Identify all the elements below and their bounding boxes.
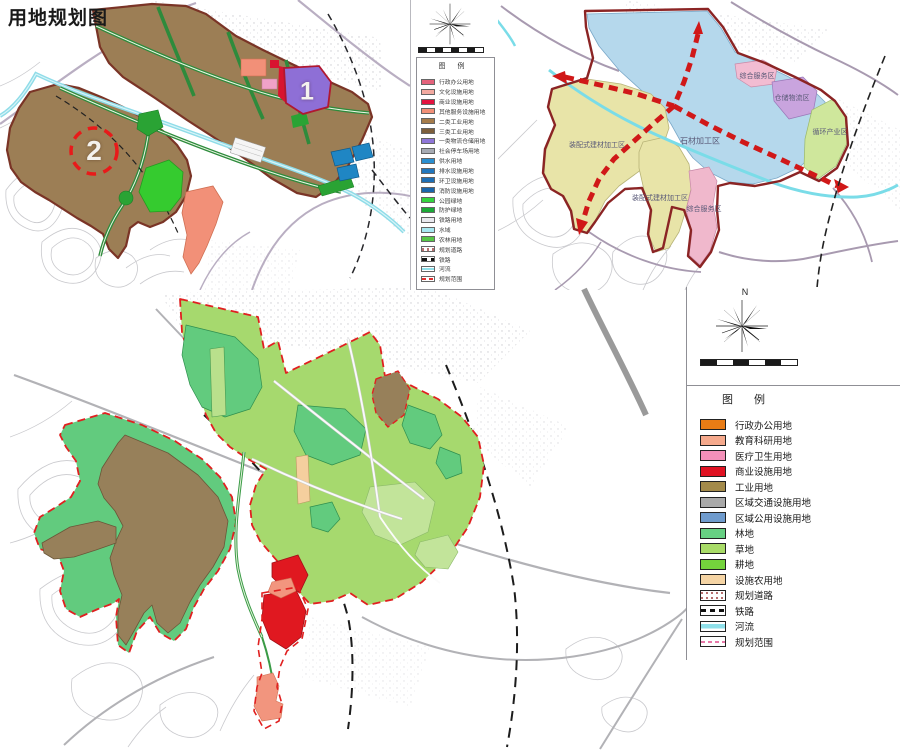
area-marker-1: 1 [300,78,314,107]
legend-label: 文化设施用地 [439,87,474,96]
legend-label: 商业设施用地 [735,464,792,478]
legend-header: 图 例 [410,61,498,71]
legend-label: 耕地 [735,557,754,571]
legend-item: 消防设施用地 [421,185,485,195]
pale-green-strip [210,347,226,417]
region-label-service-north: 综合服务区 [740,71,775,81]
legend-label: 规划道路 [735,588,773,602]
legend-swatch-fill [421,89,435,95]
legend-item: 水域 [421,225,485,235]
legend-label: 草地 [735,542,754,556]
legend-item: 商业设施用地 [700,464,811,480]
legend-items-topleft: 行政办公用地文化设施用地商业设施用地其他服务设施用地二类工业用地三类工业用地一类… [421,77,485,284]
legend-label: 排水设施用地 [439,166,474,175]
compass-rose-bottom [712,298,772,354]
legend-item: 河流 [421,264,485,274]
legend-item: 文化设施用地 [421,87,485,97]
scale-bar-topleft [418,47,484,53]
legend-item: 规划道路 [421,244,485,254]
scale-bar-bottom [700,359,798,366]
legend-swatch-rail [421,256,435,262]
map-bottom-landuse [10,287,688,751]
legend-label: 消防设施用地 [439,186,474,195]
legend-item: 农林用地 [421,235,485,245]
legend-label: 区域公用设施用地 [735,511,811,525]
legend-label: 行政办公用地 [735,418,792,432]
north-label: N [735,287,755,297]
legend-swatch-fill [421,99,435,105]
legend-label: 水域 [439,225,451,234]
legend-item: 行政办公用地 [421,77,485,87]
legend-item: 规划范围 [421,274,485,284]
legend-swatch-fill [700,559,726,570]
legend-item: 设施农用地 [700,572,811,588]
legend-item: 河流 [700,619,811,635]
legend-label: 铁路 [439,255,451,264]
legend-swatch-boundary [421,276,435,282]
legend-item: 防护绿地 [421,205,485,215]
legend-label: 商业设施用地 [439,97,474,106]
legend-swatch-fill [700,481,726,492]
legend-label: 铁路用地 [439,215,462,224]
legend-swatch-road [700,590,726,601]
area-marker-2: 2 [86,135,102,167]
legend-swatch-fill [700,574,726,585]
legend-label: 铁路 [735,604,754,618]
legend-divider-horizontal [686,385,900,386]
legend-label: 一类物流仓储用地 [439,136,485,145]
legend-label: 社会停车场用地 [439,146,480,155]
legend-item: 教育科研用地 [700,433,811,449]
legend-label: 防护绿地 [439,205,462,214]
region-label-service-south: 综合服务区 [687,204,722,214]
legend-item: 铁路 [421,254,485,264]
legend-item: 环卫设施用地 [421,175,485,185]
legend-divider-vertical [686,287,687,660]
legend-swatch-fill [700,419,726,430]
legend-label: 其他服务设施用地 [439,107,485,116]
legend-swatch-fill [700,543,726,554]
legend-item: 二类工业用地 [421,116,485,126]
legend-item: 草地 [700,541,811,557]
legend-item: 规划道路 [700,588,811,604]
legend-item: 行政办公用地 [700,417,811,433]
legend-item: 公园绿地 [421,195,485,205]
legend-label: 林地 [735,526,754,540]
legend-swatch-fill [421,128,435,134]
region-label-logistics: 仓储物流区 [775,93,810,103]
legend-label: 规划范围 [439,274,462,283]
legend-swatch-fill [421,158,435,164]
legend-swatch-fill [421,207,435,213]
legend-item: 社会停车场用地 [421,146,485,156]
legend-swatch-fill [421,217,435,223]
compass-rose-topleft [426,2,474,46]
legend-swatch-river [421,266,435,272]
legend-swatch-fill [421,177,435,183]
legend-swatch-fill [700,528,726,539]
legend-swatch-fill [421,108,435,114]
legend-panel-bottom: N 图 例 行政办公用地教育科研用地医疗卫生用地商业设施用地工业用地区域交通设施… [686,287,900,751]
legend-header: 图 例 [722,391,774,407]
land-use-planning-figure: 用地规划图 [0,0,900,751]
legend-swatch-boundary2 [700,636,726,647]
legend-swatch-fill [421,138,435,144]
legend-swatch-fill [421,79,435,85]
legend-item: 区域交通设施用地 [700,495,811,511]
legend-swatch-fill [700,450,726,461]
legend-label: 区域交通设施用地 [735,495,811,509]
region-label-circular-industry: 循环产业区 [813,127,848,137]
legend-swatch-fill [421,236,435,242]
legend-swatch-fill [700,512,726,523]
legend-swatch-fill [700,497,726,508]
legend-swatch-fill [700,466,726,477]
legend-item: 工业用地 [700,479,811,495]
legend-label: 二类工业用地 [439,117,474,126]
legend-label: 公园绿地 [439,196,462,205]
legend-label: 工业用地 [735,480,773,494]
legend-label: 规划道路 [439,245,462,254]
legend-item: 规划范围 [700,634,811,650]
legend-swatch-fill [421,197,435,203]
legend-label: 河流 [439,264,451,273]
legend-item: 耕地 [700,557,811,573]
legend-divider [410,0,411,290]
legend-item: 铁路用地 [421,215,485,225]
legend-item: 供水用地 [421,156,485,166]
legend-item: 排水设施用地 [421,166,485,176]
region-label-stone-processing: 石材加工区 [680,136,720,147]
page-title: 用地规划图 [8,3,108,30]
legend-item: 商业设施用地 [421,97,485,107]
legend-label: 供水用地 [439,156,462,165]
legend-label: 规划范围 [735,635,773,649]
legend-label: 设施农用地 [735,573,783,587]
map-topleft-landuse [0,0,410,290]
legend-swatch-fill [421,227,435,233]
legend-label: 医疗卫生用地 [735,449,792,463]
legend-items-bottom: 行政办公用地教育科研用地医疗卫生用地商业设施用地工业用地区域交通设施用地区域公用… [700,417,811,650]
legend-label: 教育科研用地 [735,433,792,447]
legend-item: 医疗卫生用地 [700,448,811,464]
region-label-prefab-south: 装配式建材加工区 [632,193,688,203]
legend-swatch-fill [421,187,435,193]
legend-label: 行政办公用地 [439,77,474,86]
legend-swatch-fill [700,435,726,446]
legend-item: 三类工业用地 [421,126,485,136]
legend-item: 区域公用设施用地 [700,510,811,526]
legend-swatch-rail [700,605,726,616]
legend-item: 其他服务设施用地 [421,107,485,117]
region-label-prefab-west: 装配式建材加工区 [569,140,625,150]
legend-label: 环卫设施用地 [439,176,474,185]
legend-item: 一类物流仓储用地 [421,136,485,146]
major-road-stub [584,289,646,415]
legend-swatch-fill [421,168,435,174]
legend-label: 农林用地 [439,235,462,244]
legend-swatch-river [700,621,726,632]
legend-swatch-fill [421,148,435,154]
legend-swatch-road [421,246,435,252]
legend-item: 林地 [700,526,811,542]
legend-label: 河流 [735,619,754,633]
legend-item: 铁路 [700,603,811,619]
legend-swatch-fill [421,118,435,124]
legend-label: 三类工业用地 [439,127,474,136]
